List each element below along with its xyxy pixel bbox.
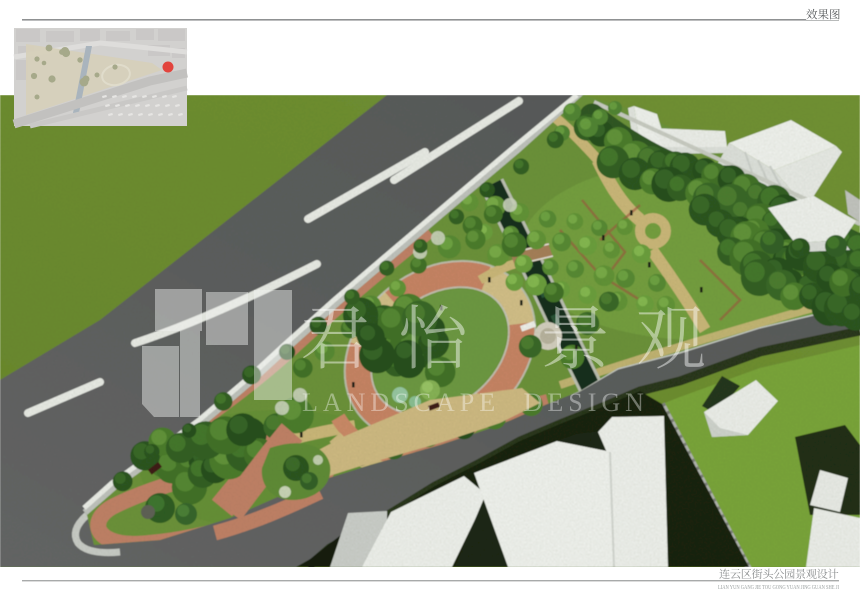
- svg-text:LANDSCAPE DESIGN: LANDSCAPE DESIGN: [302, 388, 649, 417]
- svg-text:LIAN YUN GANG JIE TOU GONG YUA: LIAN YUN GANG JIE TOU GONG YUAN JING GUA…: [718, 585, 839, 591]
